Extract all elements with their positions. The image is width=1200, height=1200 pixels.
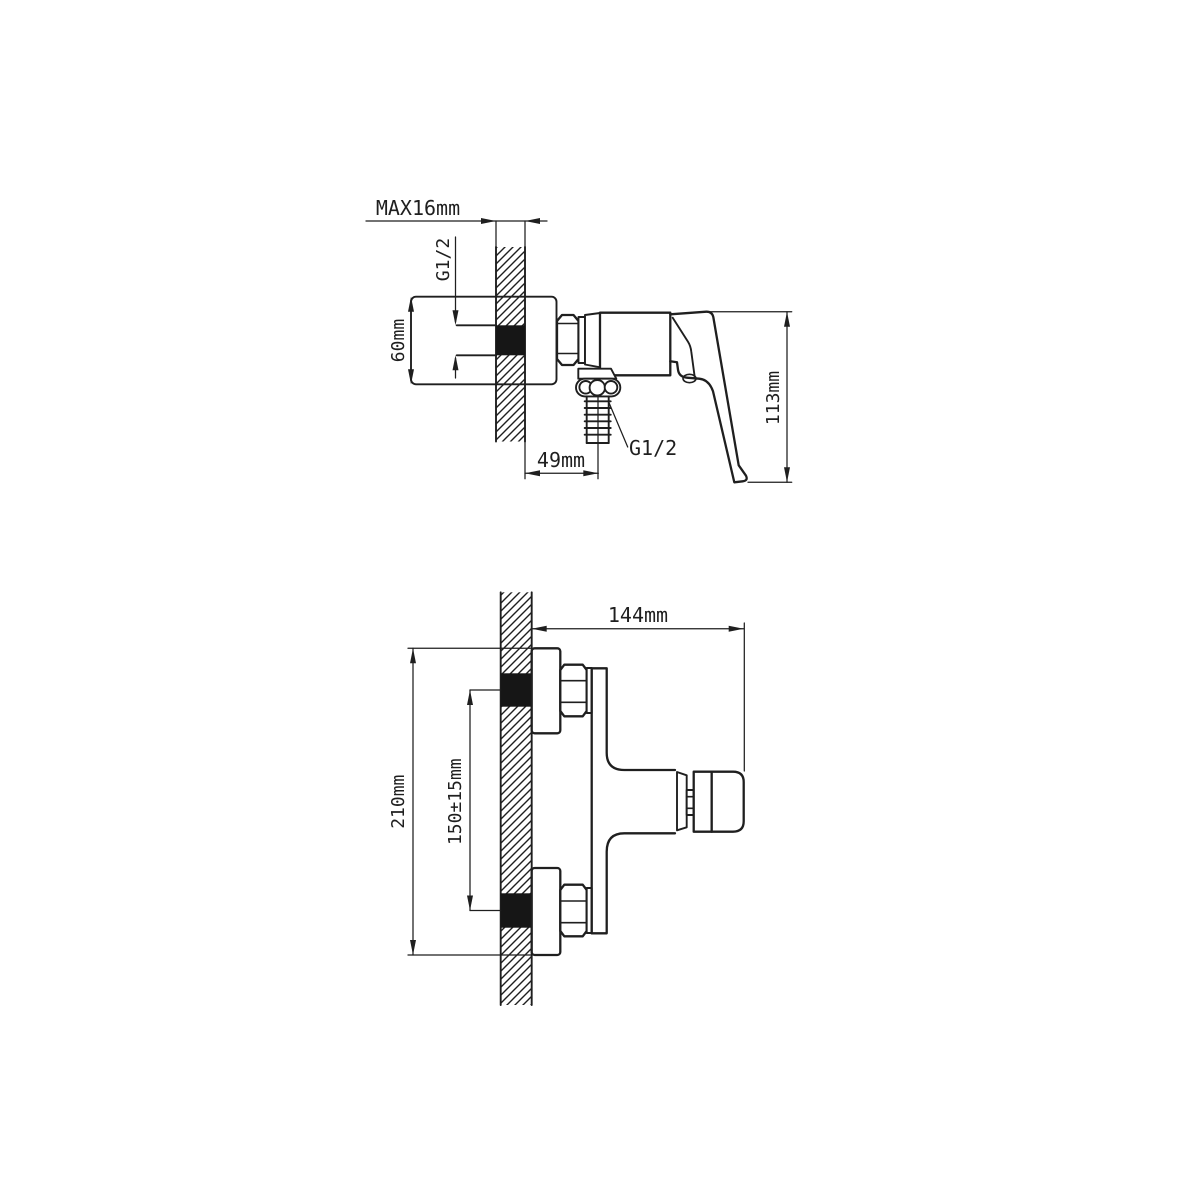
- drawing-page: MAX16mm 60mm G1/2: [0, 0, 1200, 1200]
- arrowhead: [525, 218, 540, 224]
- dim-max-wall-thickness: MAX16mm: [366, 196, 547, 247]
- mounting-flange-upper: [532, 648, 561, 733]
- arrowhead: [467, 690, 473, 705]
- label-center-distance: 150±15mm: [445, 758, 466, 845]
- callout-outlet-thread: G1/2: [609, 402, 677, 460]
- technical-drawing: MAX16mm 60mm G1/2: [0, 0, 1200, 1200]
- outlet-ring: [605, 381, 618, 394]
- dim-center-distance: 150±15mm: [445, 690, 501, 911]
- wall-hatch-front: [501, 592, 532, 1005]
- pipe-wall-plug-lower: [501, 893, 532, 927]
- arrowhead: [784, 312, 790, 327]
- pipe-wall-plug-upper: [501, 673, 532, 706]
- body-plate-lower: [592, 833, 675, 933]
- nut-washer: [579, 317, 586, 363]
- outlet-housing: [578, 369, 616, 379]
- nut-outline: [560, 885, 586, 937]
- label-outlet-offset: 49mm: [537, 448, 585, 472]
- mixer-body-front: [592, 668, 675, 933]
- arrowhead: [453, 355, 459, 370]
- inlet-pipe: [457, 325, 525, 355]
- arrowhead: [481, 218, 496, 224]
- dim-overall-height-side: 113mm: [710, 312, 792, 483]
- nut-outline: [560, 665, 586, 717]
- adapter-cone: [585, 313, 600, 367]
- handle-outline: [670, 312, 746, 483]
- arrowhead: [729, 626, 744, 632]
- label-height: 113mm: [763, 371, 784, 425]
- body-plate-upper: [592, 668, 675, 933]
- callout-inlet-thread: G1/2: [433, 237, 459, 378]
- handle-knob-front: [677, 772, 744, 832]
- knob-base: [694, 772, 712, 832]
- handle-neck-line: [673, 318, 695, 377]
- flange-outline: [411, 297, 557, 385]
- arrowhead: [408, 297, 414, 312]
- arrowhead: [408, 369, 414, 384]
- arrowhead: [467, 896, 473, 911]
- label-outlet-thread: G1/2: [629, 436, 677, 460]
- union-nut-side: [557, 313, 600, 367]
- front-view: 144mm 210mm 150±15mm: [388, 592, 744, 1005]
- label-flange-60mm: 60mm: [388, 319, 409, 362]
- mounting-flange-lower: [532, 868, 561, 955]
- pipe-wall-plug: [496, 325, 525, 355]
- outlet-ring: [590, 380, 605, 395]
- label-total-height: 210mm: [388, 775, 409, 829]
- arrowhead: [583, 470, 598, 476]
- mounting-flange-side: 60mm: [388, 297, 557, 385]
- knob-bracket: [677, 772, 687, 830]
- arrowhead: [784, 467, 790, 482]
- leader-outlet: [609, 402, 628, 447]
- nut-outline: [557, 315, 579, 365]
- union-nut-upper: [560, 665, 591, 717]
- dim-outlet-offset: 49mm: [525, 442, 598, 479]
- label-inlet-thread: G1/2: [433, 238, 454, 281]
- union-nut-lower: [560, 885, 591, 937]
- knob-cap: [712, 772, 744, 832]
- lever-handle-side: [670, 312, 746, 483]
- arrowhead: [410, 648, 416, 663]
- arrowhead: [532, 626, 547, 632]
- arrowhead: [453, 310, 459, 325]
- valve-body-side: [600, 313, 670, 376]
- arrowhead: [410, 940, 416, 955]
- label-depth: 144mm: [608, 603, 668, 627]
- side-view: MAX16mm 60mm G1/2: [366, 196, 792, 482]
- label-max-wall: MAX16mm: [376, 196, 460, 220]
